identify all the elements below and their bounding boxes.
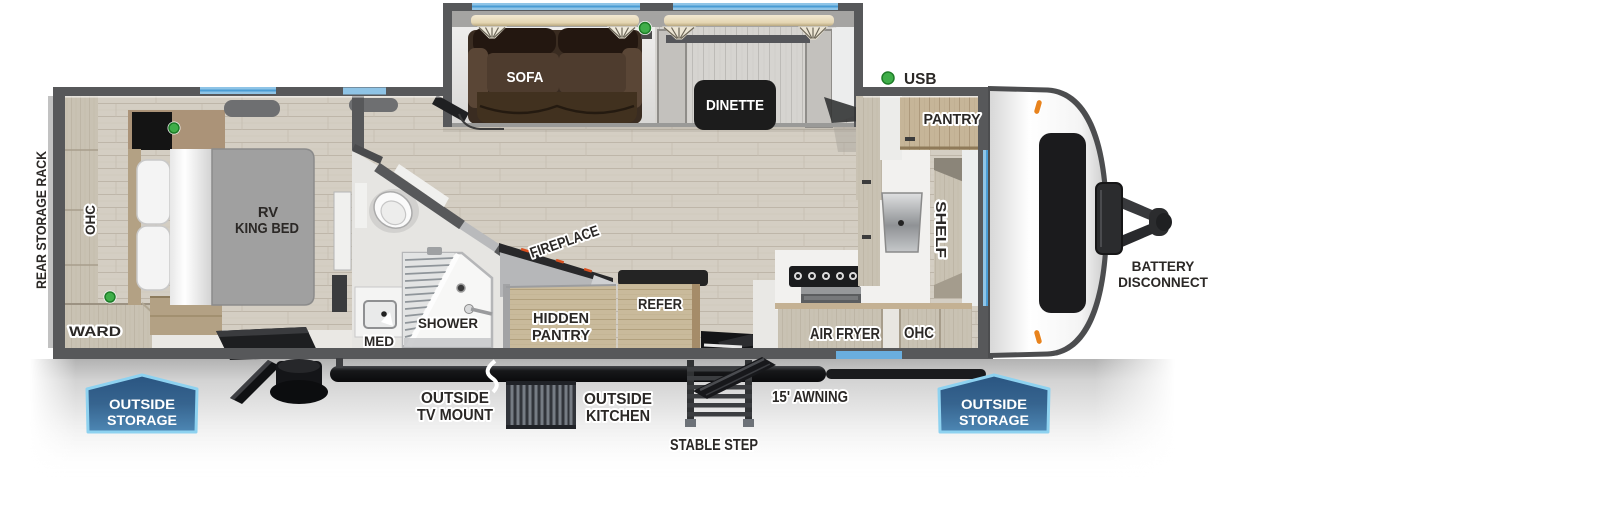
svg-text:OUTSIDE: OUTSIDE xyxy=(109,396,175,412)
svg-text:KITCHEN: KITCHEN xyxy=(586,408,650,425)
svg-text:KING BED: KING BED xyxy=(235,221,299,237)
svg-text:DINETTE: DINETTE xyxy=(706,97,764,114)
svg-text:OHC: OHC xyxy=(904,325,934,342)
svg-text:REAR STORAGE RACK: REAR STORAGE RACK xyxy=(34,150,50,289)
svg-text:DISCONNECT: DISCONNECT xyxy=(1118,275,1209,290)
svg-text:PANTRY: PANTRY xyxy=(924,112,981,128)
svg-text:SHOWER: SHOWER xyxy=(418,316,478,332)
svg-text:SOFA: SOFA xyxy=(507,69,544,86)
svg-text:15' AWNING: 15' AWNING xyxy=(772,389,848,406)
svg-text:WARD: WARD xyxy=(69,324,121,340)
svg-text:MED: MED xyxy=(364,334,394,350)
svg-text:PANTRY: PANTRY xyxy=(532,328,590,344)
svg-text:HIDDEN: HIDDEN xyxy=(533,311,589,327)
svg-text:TV MOUNT: TV MOUNT xyxy=(417,407,493,424)
svg-text:REFER: REFER xyxy=(638,297,682,313)
svg-text:OUTSIDE: OUTSIDE xyxy=(421,390,489,407)
svg-text:BATTERY: BATTERY xyxy=(1132,259,1195,274)
svg-text:STABLE STEP: STABLE STEP xyxy=(670,437,758,454)
svg-text:OUTSIDE: OUTSIDE xyxy=(584,391,652,408)
svg-text:USB: USB xyxy=(904,71,937,88)
svg-text:OUTSIDE: OUTSIDE xyxy=(961,396,1027,412)
svg-text:RV: RV xyxy=(258,205,278,221)
svg-text:STORAGE: STORAGE xyxy=(959,412,1029,428)
svg-text:SHELF: SHELF xyxy=(932,201,948,258)
svg-text:OHC: OHC xyxy=(83,205,98,235)
svg-text:AIR FRYER: AIR FRYER xyxy=(810,326,880,343)
svg-text:STORAGE: STORAGE xyxy=(107,412,177,428)
